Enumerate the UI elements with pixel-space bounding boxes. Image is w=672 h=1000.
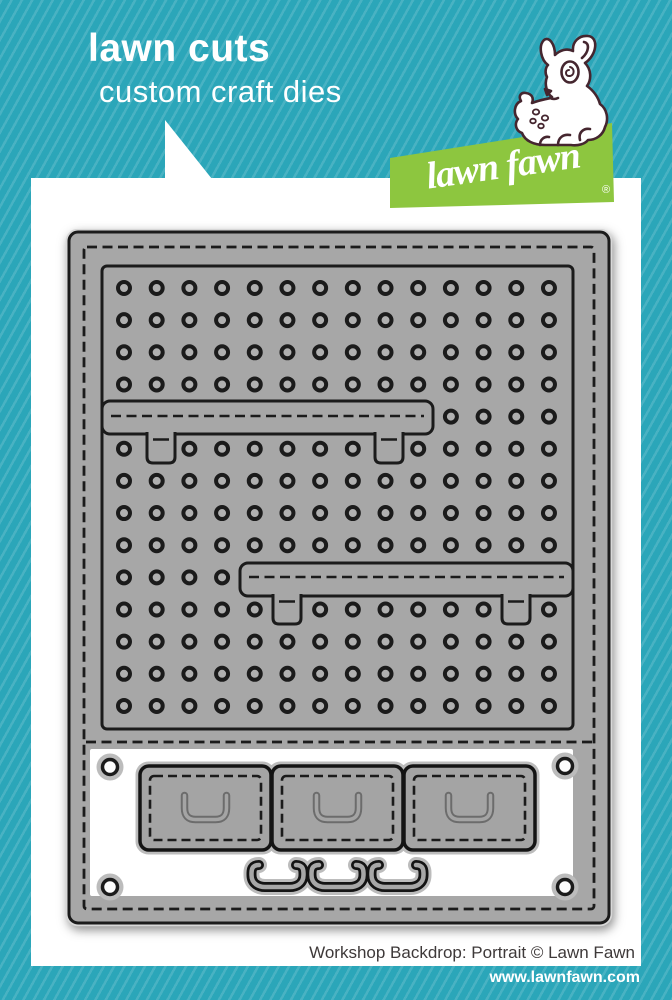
- page-title: lawn cuts: [88, 27, 270, 71]
- die-plate-svg: [65, 229, 613, 927]
- fawn-icon: [512, 34, 616, 148]
- website-url: www.lawnfawn.com: [489, 969, 640, 987]
- page-subtitle: custom craft dies: [99, 74, 342, 110]
- product-caption: Workshop Backdrop: Portrait © Lawn Fawn: [309, 943, 635, 963]
- registered-trademark-symbol: ®: [602, 184, 610, 196]
- product-image: lawn cuts custom craft dies lawn fawn ® …: [0, 0, 672, 1000]
